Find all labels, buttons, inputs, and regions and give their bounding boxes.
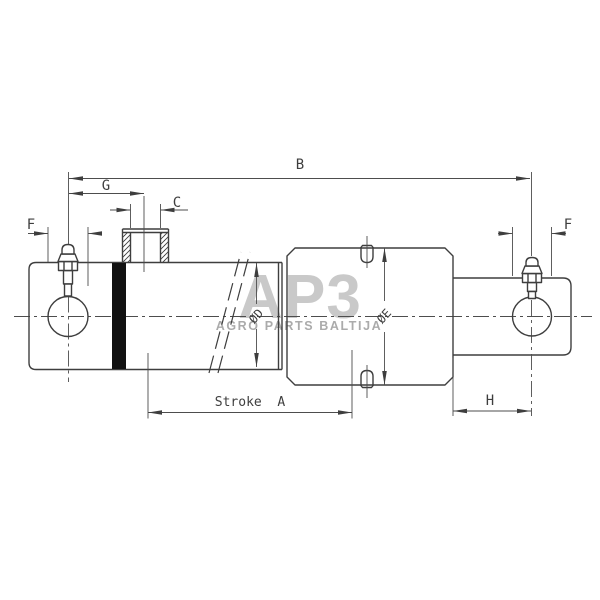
dim-c-label: C	[173, 195, 181, 211]
watermark-tagline: AGRO PARTS BALTIJA	[216, 319, 383, 333]
port-wall-left-hatch	[123, 233, 131, 263]
zerk-ball-left	[62, 245, 74, 255]
dim-b-label: B	[296, 157, 304, 173]
zerk-stem-lower-right	[529, 292, 536, 299]
hydraulic-cylinder-drawing: AP3 AGRO PARTS BALTIJA	[0, 0, 600, 600]
zerk-ball-right	[526, 258, 538, 267]
technical-drawing-page: AP3 AGRO PARTS BALTIJA	[0, 0, 600, 600]
dim-f-right-label: F	[564, 217, 572, 233]
zerk-hex-right	[523, 274, 542, 283]
dim-h-label: H	[486, 393, 494, 409]
zerk-stem-lower-left	[65, 284, 72, 296]
dim-g-label: G	[102, 178, 110, 194]
zerk-stem-upper-left	[64, 271, 73, 285]
port-wall-right-hatch	[161, 233, 169, 263]
zerk-stem-upper-right	[528, 283, 537, 292]
zerk-collar-left	[58, 254, 78, 262]
dim-f-left-label: F	[27, 217, 35, 233]
zerk-hex-left	[59, 262, 78, 271]
watermark: AP3 AGRO PARTS BALTIJA	[216, 263, 383, 333]
dim-stroke-a-label: Stroke A	[215, 395, 286, 410]
zerk-collar-right	[522, 266, 542, 274]
seal-band	[112, 263, 126, 369]
